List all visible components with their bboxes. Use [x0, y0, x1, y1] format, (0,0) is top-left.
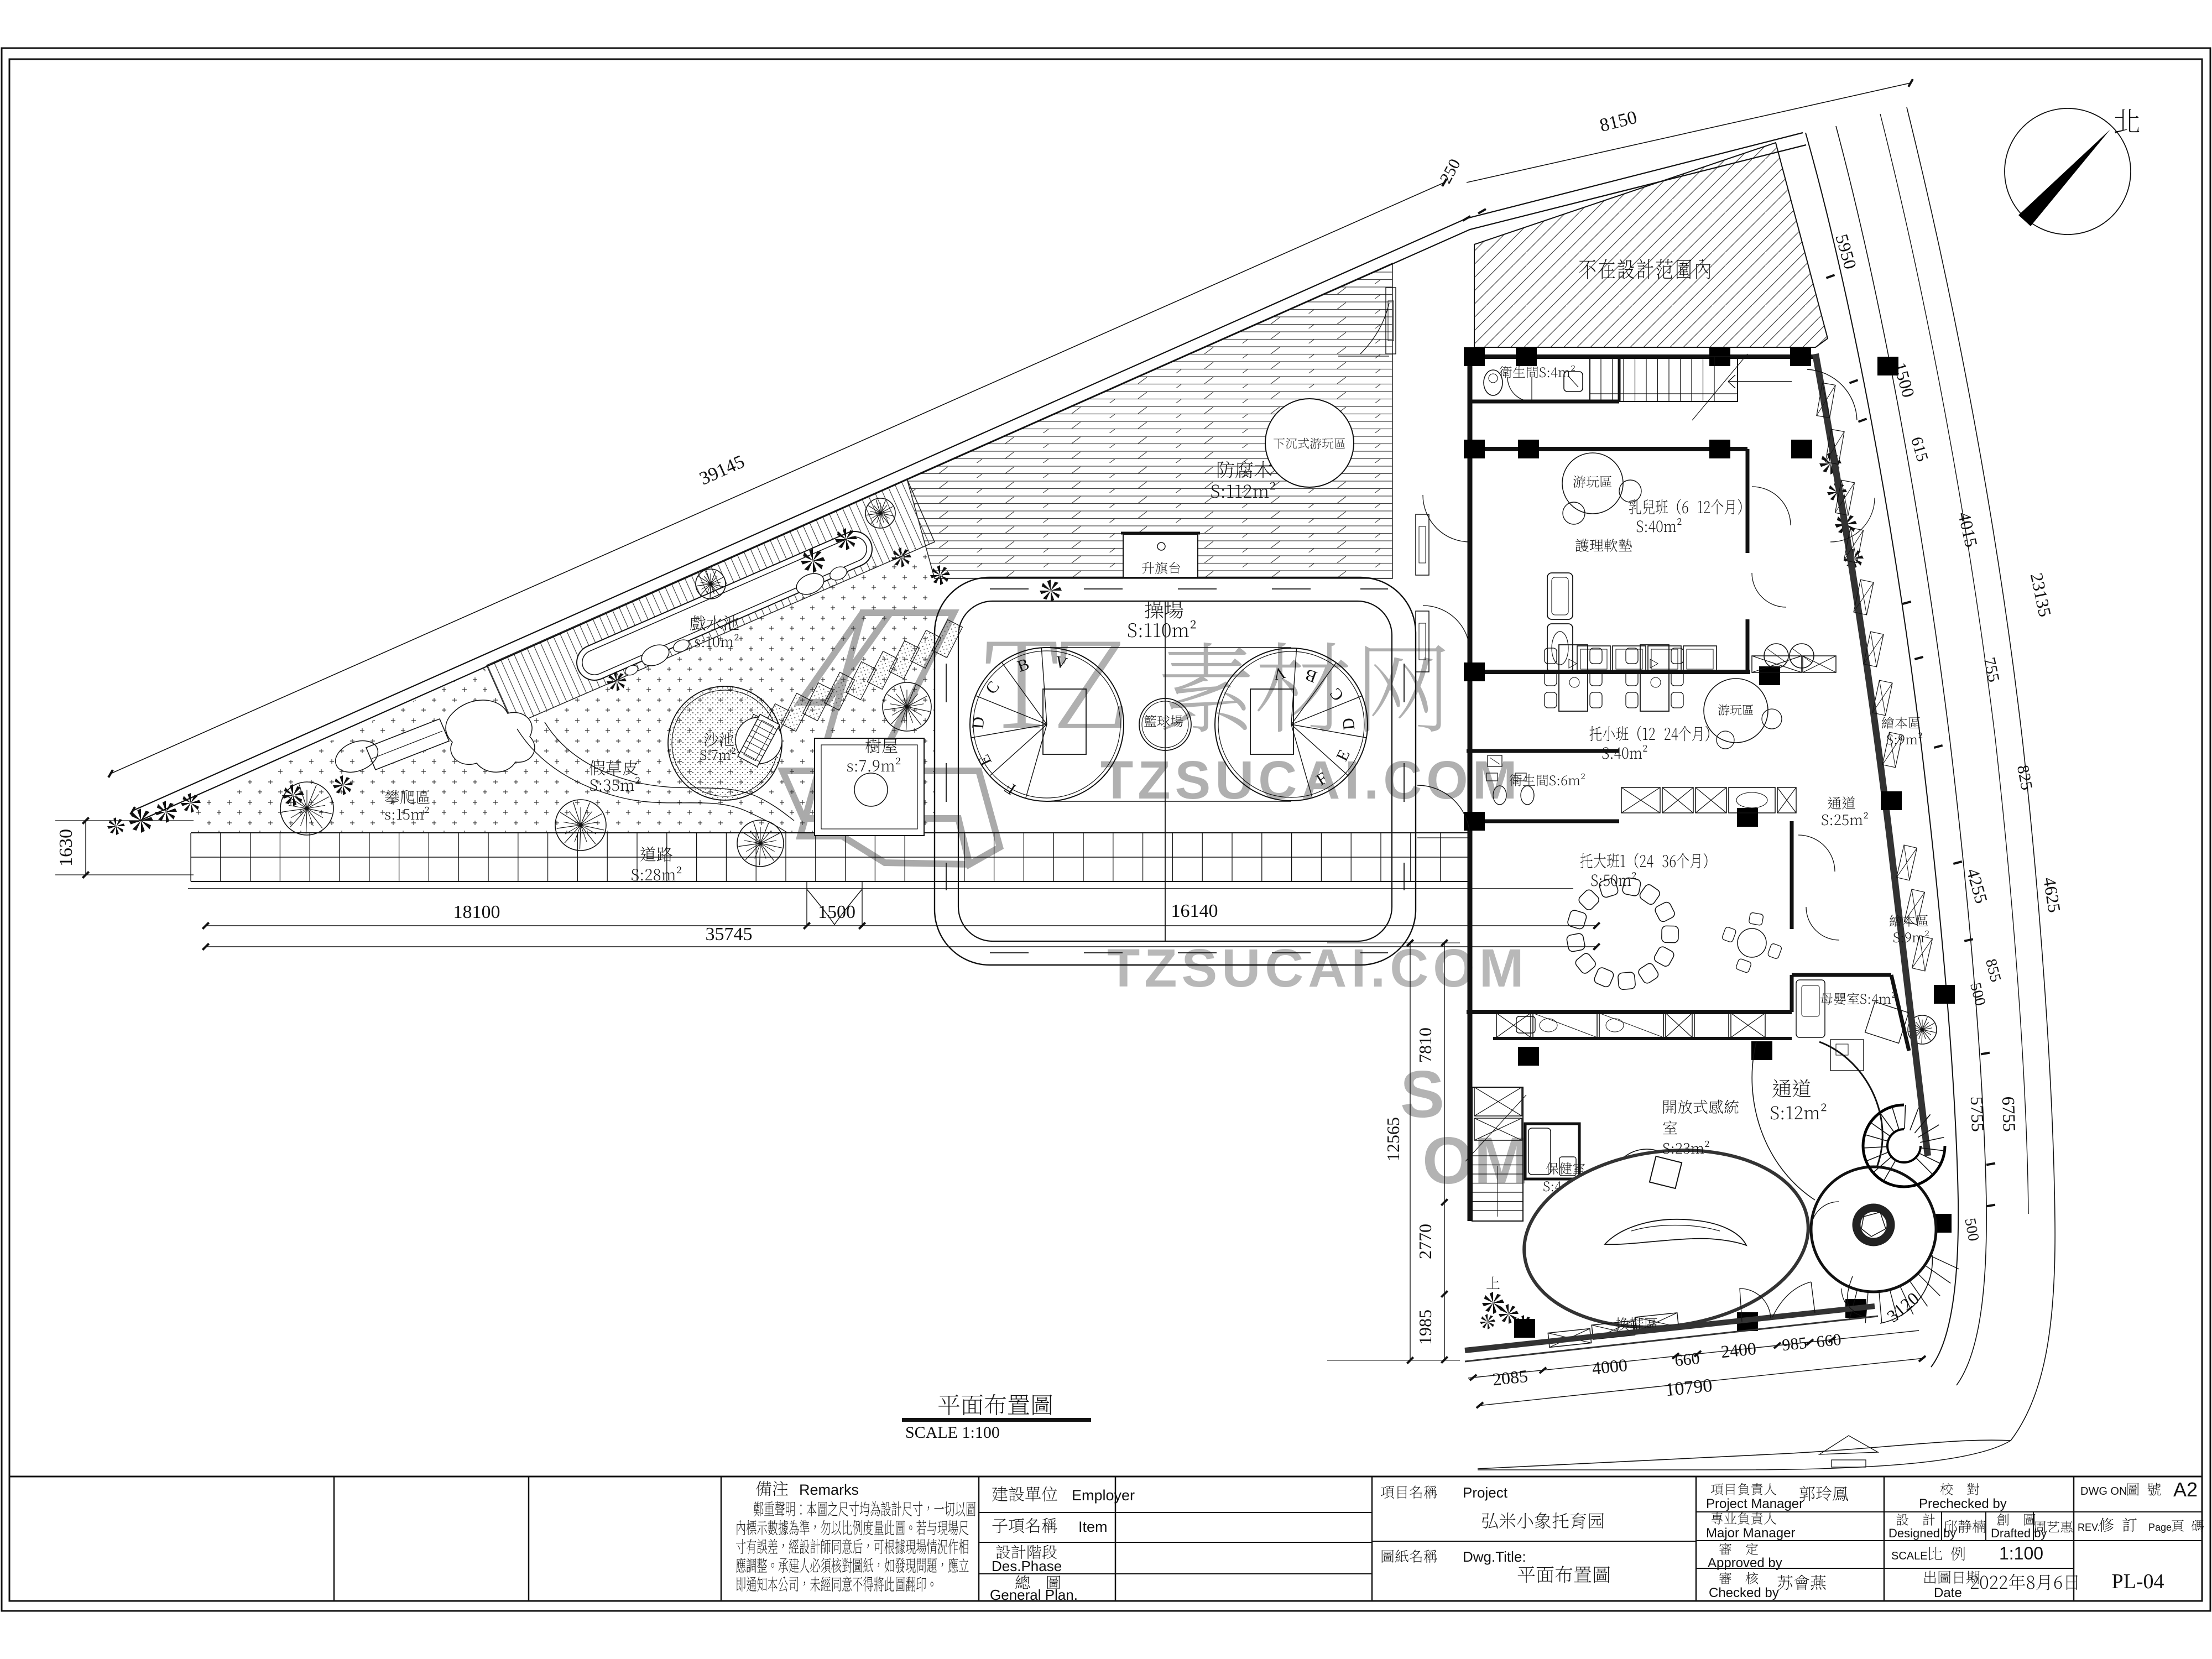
svg-text:Des.Phase: Des.Phase: [992, 1558, 1062, 1574]
svg-text:1630: 1630: [56, 829, 76, 867]
svg-text:985: 985: [1781, 1334, 1808, 1355]
svg-text:Remarks: Remarks: [799, 1481, 859, 1498]
svg-text:Item: Item: [1078, 1519, 1108, 1535]
svg-text:SCALE: SCALE: [1891, 1550, 1928, 1562]
svg-text:Employer: Employer: [1072, 1487, 1135, 1504]
svg-text:DWG ON: DWG ON: [2080, 1485, 2127, 1498]
svg-text:1500: 1500: [818, 902, 855, 922]
svg-text:2085: 2085: [1491, 1366, 1528, 1389]
svg-text:Date: Date: [1934, 1585, 1962, 1600]
svg-text:1985: 1985: [1415, 1310, 1435, 1345]
svg-text:4000: 4000: [1591, 1355, 1628, 1378]
svg-text:Prechecked by: Prechecked by: [1919, 1496, 2007, 1511]
svg-text:660: 660: [1815, 1331, 1842, 1352]
svg-text:OM: OM: [1422, 1124, 1529, 1198]
svg-text:6755: 6755: [1999, 1096, 2020, 1132]
svg-text:5755: 5755: [1967, 1096, 1988, 1132]
svg-text:18100: 18100: [453, 902, 500, 922]
svg-text:Drafted by: Drafted by: [1991, 1526, 2047, 1540]
svg-text:12565: 12565: [1383, 1117, 1403, 1161]
svg-text:660: 660: [1674, 1349, 1700, 1370]
svg-text:A2: A2: [2173, 1478, 2198, 1501]
svg-text:D: D: [1339, 717, 1358, 731]
svg-text:Project Manager: Project Manager: [1706, 1496, 1803, 1511]
svg-text:1:100: 1:100: [1999, 1543, 2043, 1563]
svg-text:D: D: [969, 716, 988, 730]
svg-text:Dwg.Title:: Dwg.Title:: [1463, 1548, 1526, 1565]
svg-text:S: S: [1400, 1057, 1444, 1131]
svg-text:Checked by: Checked by: [1709, 1585, 1779, 1600]
svg-text:7810: 7810: [1415, 1027, 1435, 1063]
svg-text:35745: 35745: [706, 924, 753, 945]
svg-text:Major Manager: Major Manager: [1706, 1526, 1795, 1541]
svg-text:REV.: REV.: [2078, 1522, 2100, 1533]
svg-text:Page.: Page.: [2148, 1522, 2174, 1533]
svg-text:General Plan.: General Plan.: [990, 1587, 1078, 1603]
svg-text:2400: 2400: [1720, 1338, 1757, 1361]
svg-text:SCALE 1:100: SCALE 1:100: [905, 1423, 1000, 1442]
svg-text:Project: Project: [1463, 1484, 1508, 1501]
svg-text:16140: 16140: [1171, 901, 1218, 921]
svg-text:Designed by: Designed by: [1888, 1526, 1956, 1540]
svg-text:PL-04: PL-04: [2112, 1570, 2164, 1593]
svg-text:2770: 2770: [1415, 1224, 1435, 1259]
svg-text:Approved by: Approved by: [1708, 1556, 1782, 1571]
